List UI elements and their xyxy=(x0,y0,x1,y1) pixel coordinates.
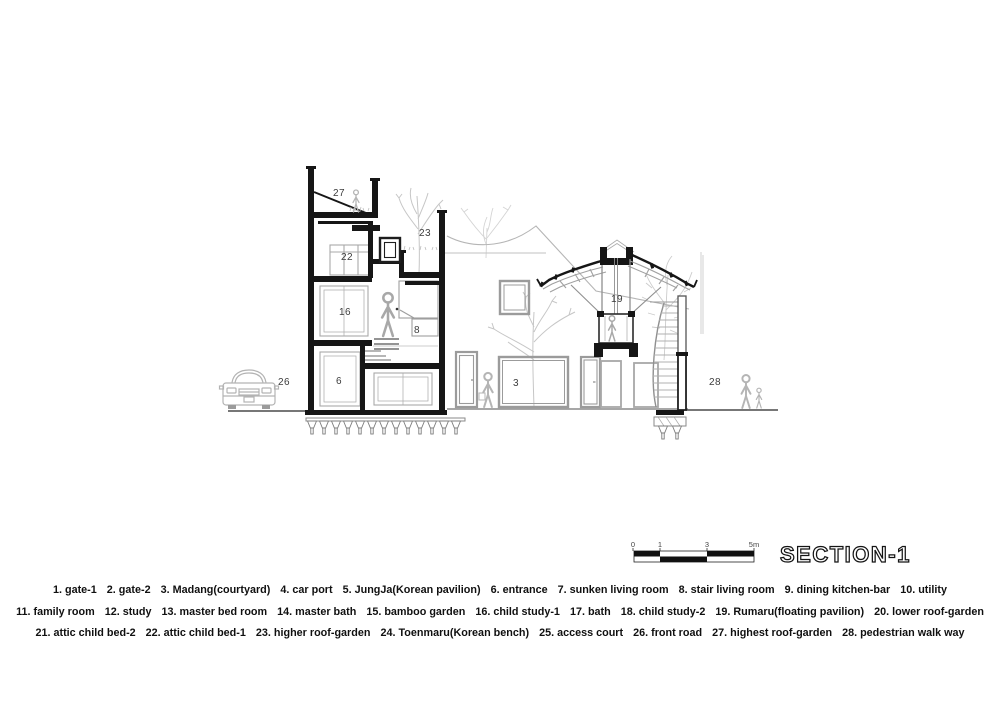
stair-wall-lower xyxy=(678,355,686,410)
foundation-piles xyxy=(308,421,461,434)
legend-item-21: 21. attic child bed-2 xyxy=(35,627,135,639)
door-right xyxy=(581,357,600,407)
person-walkway-child xyxy=(756,388,761,408)
legend-item-22: 22. attic child bed-1 xyxy=(146,627,246,639)
handrail-dot xyxy=(396,308,399,311)
stair-foundation xyxy=(656,410,684,415)
foundation-beam xyxy=(306,418,465,421)
planter-23-bottom2 xyxy=(405,281,439,285)
wall-left-cap xyxy=(306,166,316,169)
legend-line: 11. family room12. study13. master bed r… xyxy=(0,602,1000,624)
room-number-3: 3 xyxy=(513,378,519,389)
scalebar-seg-2 xyxy=(660,557,707,563)
mini-roof-window-bay xyxy=(352,225,380,231)
car xyxy=(220,370,279,409)
people xyxy=(353,190,762,408)
room-number-23: 23 xyxy=(419,228,431,239)
section-drawing-page: 36816192223262728 0135m SECTION-1 1. gat… xyxy=(0,0,1000,707)
drawing-title: SECTION-1 xyxy=(780,542,911,567)
room-number-27: 27 xyxy=(333,188,345,199)
scale-label-5m: 5m xyxy=(749,540,759,549)
legend-item-10: 10. utility xyxy=(900,584,947,596)
room-number-26: 26 xyxy=(278,377,290,388)
legend-line: 21. attic child bed-222. attic child bed… xyxy=(0,623,1000,645)
legend-item-18: 18. child study-2 xyxy=(621,606,706,618)
rumaru-box xyxy=(594,311,638,357)
legend-item-16: 16. child study-1 xyxy=(475,606,560,618)
scalebar-seg-1 xyxy=(634,551,660,557)
legend-item-14: 14. master bath xyxy=(277,606,356,618)
legend-item-7: 7. sunken living room xyxy=(558,584,669,596)
slab-roofgarden-27 xyxy=(314,212,378,218)
legend-item-17: 17. bath xyxy=(570,606,611,618)
person-stair-living xyxy=(382,293,394,336)
upper-window xyxy=(500,281,529,314)
room-number-6: 6 xyxy=(336,376,342,387)
legend-item-8: 8. stair living room xyxy=(679,584,775,596)
wall-right xyxy=(439,210,445,412)
slab-study-floor xyxy=(314,340,372,346)
legend-item-11: 11. family room xyxy=(16,606,95,618)
legend-item-2: 2. gate-2 xyxy=(107,584,151,596)
slab-stairroom-floor xyxy=(360,363,445,369)
legend-item-27: 27. highest roof-garden xyxy=(712,627,832,639)
section-drawing-canvas: 36816192223262728 0135m SECTION-1 xyxy=(0,0,1000,580)
legend-item-3: 3. Madang(courtyard) xyxy=(161,584,271,596)
wall-left xyxy=(308,166,314,412)
scale-label-1: 1 xyxy=(658,540,662,549)
legend-item-9: 9. dining kitchen-bar xyxy=(785,584,891,596)
parapet-27-cap xyxy=(370,178,380,181)
attic-window xyxy=(380,238,400,262)
door-left xyxy=(456,352,477,407)
room-number-22: 22 xyxy=(341,252,353,263)
scalebar-labels: 0135m xyxy=(631,540,759,549)
legend-item-25: 25. access court xyxy=(539,627,623,639)
outdoor-stair xyxy=(650,296,688,439)
ridge-cut-section xyxy=(600,247,633,265)
legend-item-15: 15. bamboo garden xyxy=(366,606,465,618)
person-courtyard xyxy=(479,373,493,407)
legend-item-4: 4. car port xyxy=(280,584,332,596)
background-tree xyxy=(461,205,511,258)
ceiling-attic xyxy=(318,221,372,224)
legend: 1. gate-12. gate-23. Madang(courtyard)4.… xyxy=(0,580,1000,645)
wall-entrance-right xyxy=(360,346,365,410)
furniture-sunken xyxy=(374,373,432,405)
room-number-19: 19 xyxy=(611,294,623,305)
legend-item-6: 6. entrance xyxy=(491,584,548,596)
legend-item-19: 19. Rumaru(floating pavilion) xyxy=(715,606,864,618)
scale-bar: 0135m xyxy=(631,540,759,562)
planter-23-bottom xyxy=(399,272,444,278)
scale-label-0: 0 xyxy=(631,540,635,549)
stair-wall-cap xyxy=(676,352,688,356)
legend-item-5: 5. JungJa(Korean pavilion) xyxy=(343,584,481,596)
legend-item-13: 13. master bed room xyxy=(162,606,268,618)
bag xyxy=(479,393,485,400)
legend-item-23: 23. higher roof-garden xyxy=(256,627,371,639)
legend-item-20: 20. lower roof-garden xyxy=(874,606,984,618)
legend-line: 1. gate-12. gate-23. Madang(courtyard)4.… xyxy=(0,580,1000,602)
legend-item-1: 1. gate-1 xyxy=(53,584,97,596)
room-number-28: 28 xyxy=(709,377,721,388)
wall-panel-small xyxy=(601,361,621,407)
stair-piles xyxy=(659,426,682,439)
scalebar-seg-3 xyxy=(707,551,754,557)
legend-item-28: 28. pedestrian walk way xyxy=(842,627,964,639)
slab-attic-floor xyxy=(314,276,372,282)
rumaru-base xyxy=(594,343,638,357)
room-number-8: 8 xyxy=(414,325,420,336)
legend-item-24: 24. Toenmaru(Korean bench) xyxy=(380,627,529,639)
legend-item-26: 26. front road xyxy=(633,627,702,639)
room-number-16: 16 xyxy=(339,307,351,318)
stair-treads xyxy=(653,306,678,397)
ground-slab xyxy=(305,410,447,415)
scale-label-3: 3 xyxy=(705,540,709,549)
wall-right-cap xyxy=(437,210,447,213)
legend-item-12: 12. study xyxy=(105,606,152,618)
scalebar-ticks xyxy=(633,548,754,551)
person-walkway-adult xyxy=(742,375,751,408)
